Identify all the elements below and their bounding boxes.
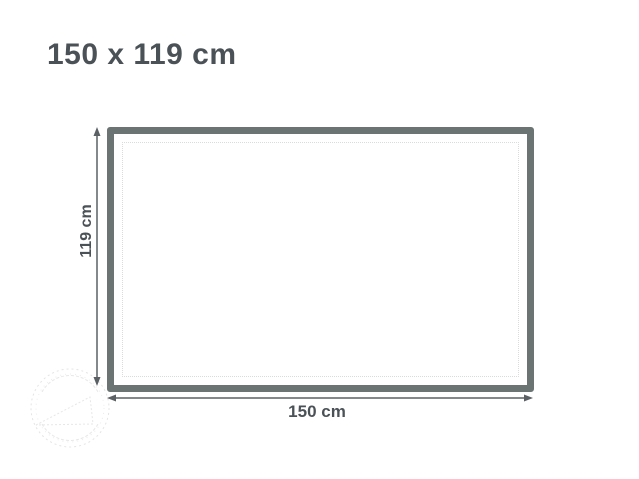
arrowhead-down-icon	[94, 377, 101, 386]
arrowhead-left-icon	[107, 395, 116, 402]
width-label: 150 cm	[247, 402, 387, 422]
product-rectangle	[107, 127, 534, 392]
watermark-triangle-icon	[36, 397, 93, 425]
arrowhead-up-icon	[94, 127, 101, 136]
watermark-stamp	[31, 369, 109, 447]
width-arrow	[107, 395, 533, 402]
page-title: 150 x 119 cm	[47, 38, 237, 72]
stitch-line	[122, 142, 519, 377]
height-label: 119 cm	[78, 202, 96, 260]
arrowhead-right-icon	[524, 395, 533, 402]
size-diagram: 150 x 119 cm 119 cm 150 cm	[0, 0, 639, 479]
